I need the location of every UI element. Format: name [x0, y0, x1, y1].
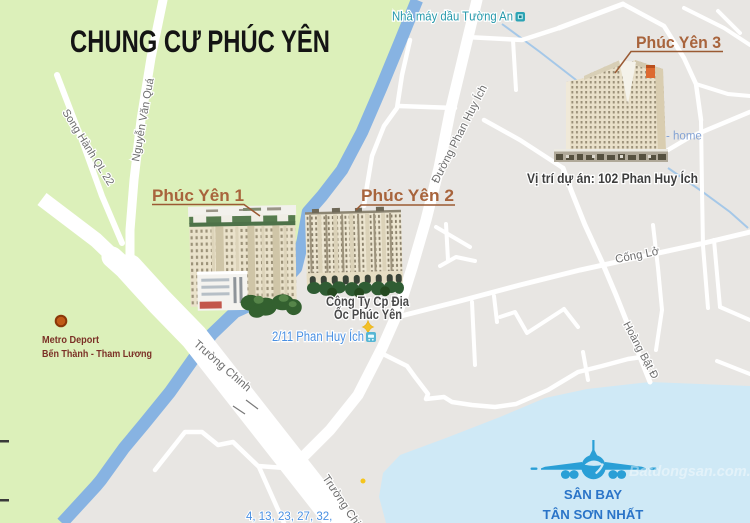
svg-text:Phúc Yên 1: Phúc Yên 1 [152, 186, 244, 205]
svg-text:Vị trí dự án: 102 Phan Huy Ích: Vị trí dự án: 102 Phan Huy Ích [527, 171, 698, 186]
svg-text:Batdongsan.com.vn: Batdongsan.com.vn [629, 464, 750, 480]
svg-text:Metro Deport: Metro Deport [42, 335, 100, 346]
svg-text:CHUNG CƯ PHÚC YÊN: CHUNG CƯ PHÚC YÊN [70, 23, 330, 59]
svg-text:TÂN SƠN NHẤT: TÂN SƠN NHẤT [543, 507, 644, 522]
svg-text:Bến Thành - Tham Lương: Bến Thành - Tham Lương [42, 348, 152, 360]
svg-text:SÂN BAY: SÂN BAY [564, 487, 622, 502]
svg-text:Nhà máy dầu Tường An: Nhà máy dầu Tường An [392, 9, 513, 24]
svg-text:2/11 Phan Huy Ích: 2/11 Phan Huy Ích [272, 329, 364, 344]
svg-text:Phúc Yên 2: Phúc Yên 2 [361, 186, 454, 205]
svg-text:Phúc Yên 3: Phúc Yên 3 [636, 34, 721, 52]
svg-text:- home: - home [666, 131, 702, 143]
svg-text:4, 13, 23, 27, 32,: 4, 13, 23, 27, 32, [246, 511, 332, 523]
